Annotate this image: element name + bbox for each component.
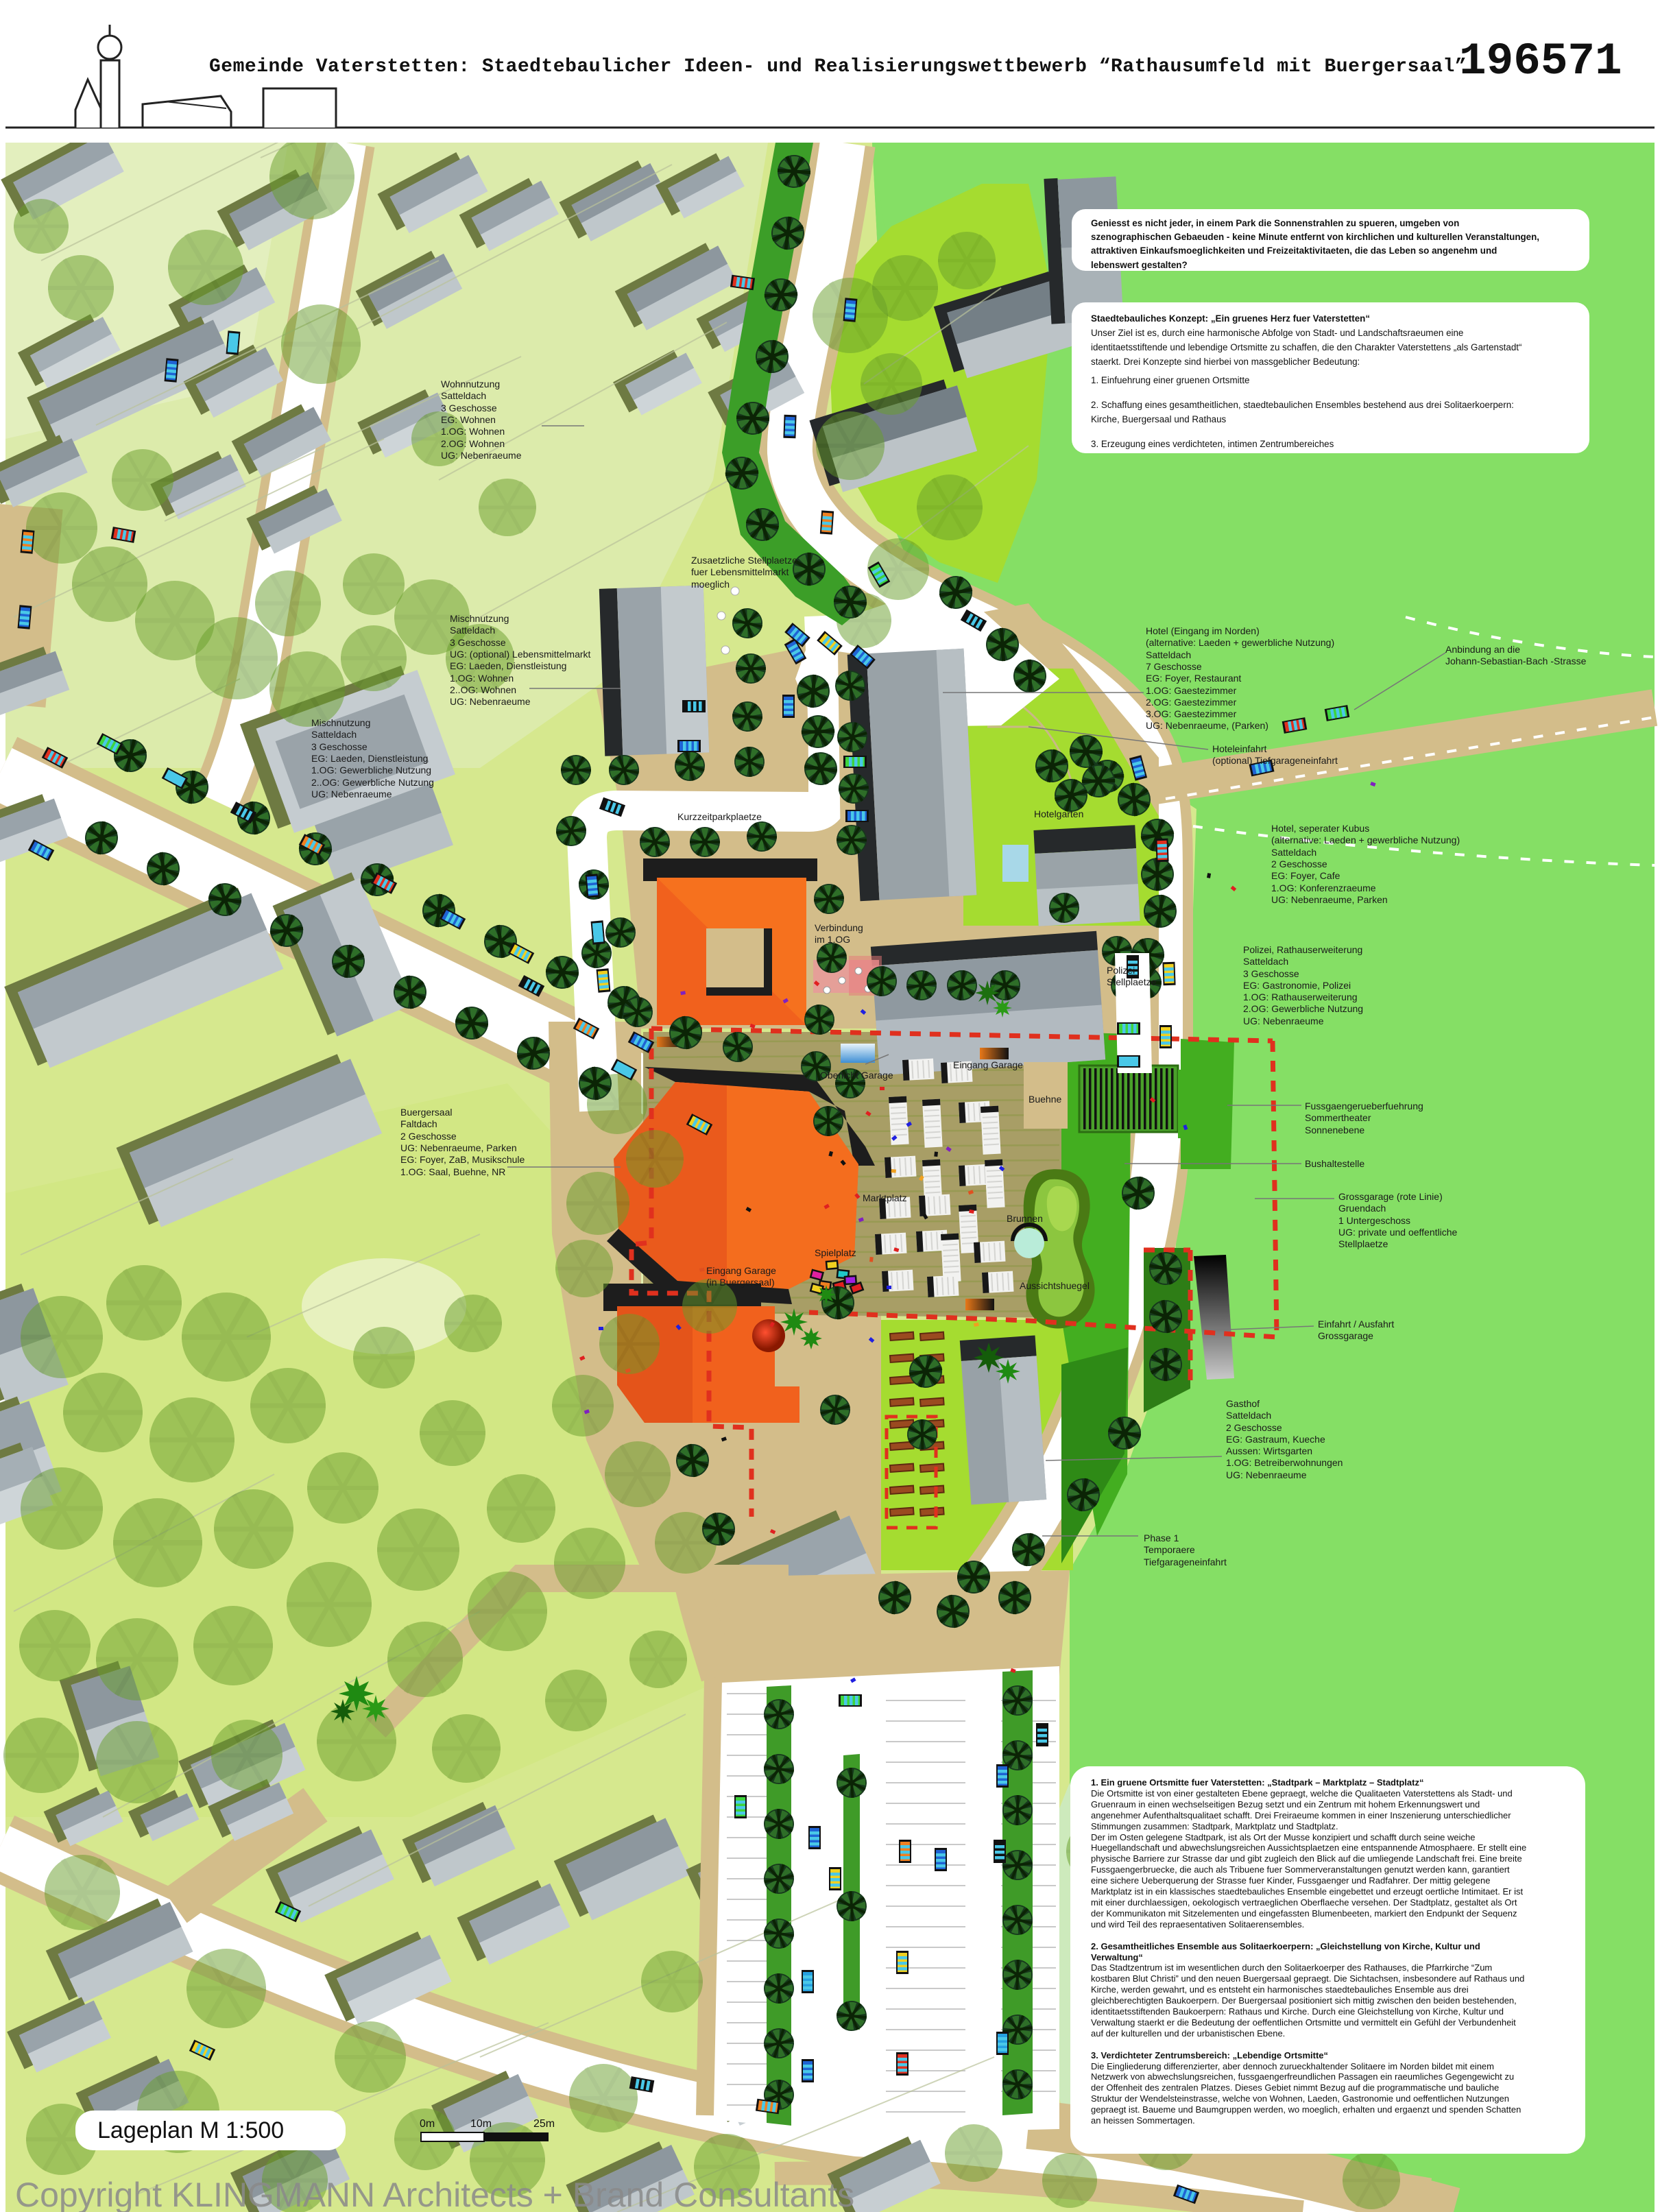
svg-text:2..OG: Gewerbliche Nutzung: 2..OG: Gewerbliche Nutzung <box>311 777 434 788</box>
svg-text:Eingang Garage: Eingang Garage <box>953 1059 1023 1070</box>
svg-text:EG: Laeden, Dienstleistung: EG: Laeden, Dienstleistung <box>450 660 566 671</box>
svg-text:UG: private und oeffentliche: UG: private und oeffentliche <box>1338 1227 1458 1238</box>
svg-text:1.OG: Rathauserweiterung: 1.OG: Rathauserweiterung <box>1243 991 1358 1002</box>
svg-text:3 Geschosse: 3 Geschosse <box>450 637 506 648</box>
svg-text:Spielplatz: Spielplatz <box>815 1247 856 1258</box>
svg-text:EG: Laeden, Dienstleistung: EG: Laeden, Dienstleistung <box>311 753 428 764</box>
svg-text:1.OG: Wohnen: 1.OG: Wohnen <box>450 673 514 684</box>
svg-text:25m: 25m <box>533 2118 555 2130</box>
svg-text:3 Geschosse: 3 Geschosse <box>1243 968 1299 979</box>
svg-text:Fussgaengerueberfuehrung: Fussgaengerueberfuehrung <box>1305 1101 1423 1111</box>
svg-text:2.OG: Wohnen: 2.OG: Wohnen <box>441 438 505 449</box>
svg-text:Satteldach: Satteldach <box>311 729 357 740</box>
svg-text:3.OG: Gaestezimmer: 3.OG: Gaestezimmer <box>1146 708 1237 719</box>
svg-text:196571: 196571 <box>1459 36 1622 87</box>
svg-text:UG: Nebenraeume, Parken: UG: Nebenraeume, Parken <box>400 1142 517 1153</box>
svg-text:2 Geschosse: 2 Geschosse <box>400 1131 457 1142</box>
svg-text:2 Geschosse: 2 Geschosse <box>1226 1422 1282 1433</box>
svg-text:Sommertheater: Sommertheater <box>1305 1112 1371 1123</box>
svg-text:Polizei: Polizei <box>1107 965 1135 976</box>
svg-text:Hoteleinfahrt: Hoteleinfahrt <box>1212 743 1266 754</box>
svg-text:Hotel, seperater Kubus: Hotel, seperater Kubus <box>1271 823 1369 834</box>
svg-text:Aussichtshuegel: Aussichtshuegel <box>1020 1280 1090 1291</box>
svg-text:Mischnutzung: Mischnutzung <box>450 613 509 624</box>
svg-text:Satteldach: Satteldach <box>441 390 486 401</box>
svg-text:UG: Nebenraeume: UG: Nebenraeume <box>1243 1015 1324 1026</box>
svg-text:(alternative: Laeden + gewerb: (alternative: Laeden + gewerbliche Nutzu… <box>1271 834 1460 845</box>
svg-text:Sonnenebene: Sonnenebene <box>1305 1125 1364 1135</box>
svg-text:Gemeinde Vaterstetten: Staedte: Gemeinde Vaterstetten: Staedtebaulicher … <box>209 56 1467 77</box>
svg-text:Aussen: Wirtsgarten: Aussen: Wirtsgarten <box>1226 1445 1312 1456</box>
svg-text:3 Geschosse: 3 Geschosse <box>311 741 368 752</box>
svg-text:2.OG: Gewerbliche Nutzung: 2.OG: Gewerbliche Nutzung <box>1243 1003 1363 1014</box>
svg-text:Gruendach: Gruendach <box>1338 1203 1386 1214</box>
svg-text:2 Geschosse: 2 Geschosse <box>1271 858 1327 869</box>
svg-text:Temporaere: Temporaere <box>1144 1544 1195 1555</box>
svg-text:UG: Nebenraeume, (Parken): UG: Nebenraeume, (Parken) <box>1146 720 1268 731</box>
svg-text:Eingang Garage: Eingang Garage <box>706 1265 776 1276</box>
svg-text:(optional) Tiefgarageneinfahrt: (optional) Tiefgarageneinfahrt <box>1212 755 1338 766</box>
svg-text:Brunnen: Brunnen <box>1007 1213 1043 1224</box>
svg-text:(alternative: Laeden + gewerb: (alternative: Laeden + gewerbliche Nutzu… <box>1146 637 1334 648</box>
svg-text:2..OG: Wohnen: 2..OG: Wohnen <box>450 684 516 695</box>
svg-text:Kurzzeitparkplaetze: Kurzzeitparkplaetze <box>677 811 762 822</box>
svg-text:Satteldach: Satteldach <box>1243 956 1288 967</box>
svg-text:EG: Foyer, Cafe: EG: Foyer, Cafe <box>1271 870 1340 881</box>
svg-text:1.OG: Konferenzraeume: 1.OG: Konferenzraeume <box>1271 882 1376 893</box>
svg-text:Wohnnutzung: Wohnnutzung <box>441 378 500 389</box>
svg-text:EG: Gastronomie, Polizei: EG: Gastronomie, Polizei <box>1243 980 1351 991</box>
svg-text:EG: Wohnen: EG: Wohnen <box>441 414 496 425</box>
svg-text:Lageplan M 1:500: Lageplan M 1:500 <box>97 2117 284 2143</box>
svg-text:UG: (optional) Lebensmittelmar: UG: (optional) Lebensmittelmarkt <box>450 649 591 660</box>
svg-text:Buehne: Buehne <box>1029 1094 1061 1105</box>
svg-text:EG: Foyer, Restaurant: EG: Foyer, Restaurant <box>1146 673 1241 684</box>
svg-text:Satteldach: Satteldach <box>450 625 495 636</box>
svg-text:Buergersaal: Buergersaal <box>400 1107 453 1118</box>
svg-text:Copyright KLINGMANN Architects: Copyright KLINGMANN Architects + Brand C… <box>15 2176 854 2212</box>
svg-text:UG: Nebenraeume: UG: Nebenraeume <box>311 789 392 800</box>
svg-text:1.OG: Wohnen: 1.OG: Wohnen <box>441 426 505 437</box>
svg-text:Bushaltestelle: Bushaltestelle <box>1305 1158 1364 1169</box>
svg-text:Satteldach: Satteldach <box>1146 649 1191 660</box>
svg-text:2.OG: Gaestezimmer: 2.OG: Gaestezimmer <box>1146 697 1237 708</box>
svg-text:1.OG: Betreiberwohnungen: 1.OG: Betreiberwohnungen <box>1226 1457 1343 1468</box>
svg-text:10m: 10m <box>470 2118 492 2130</box>
svg-text:Faltdach: Faltdach <box>400 1118 437 1129</box>
svg-text:Zusaetzliche Stellplaetze: Zusaetzliche Stellplaetze <box>691 555 797 566</box>
svg-text:moeglich: moeglich <box>691 579 730 590</box>
svg-text:Polizei, Rathauserweiterung: Polizei, Rathauserweiterung <box>1243 944 1362 955</box>
svg-text:Marktplatz: Marktplatz <box>863 1192 907 1203</box>
svg-text:Einfahrt / Ausfahrt: Einfahrt / Ausfahrt <box>1318 1319 1394 1330</box>
svg-text:Hotelgarten: Hotelgarten <box>1034 808 1083 819</box>
svg-text:7 Geschosse: 7 Geschosse <box>1146 661 1202 672</box>
svg-text:im 1.OG: im 1.OG <box>815 934 850 945</box>
svg-text:1.OG: Gaestezimmer: 1.OG: Gaestezimmer <box>1146 685 1237 696</box>
svg-text:fuer Lebensmittelmarkt: fuer Lebensmittelmarkt <box>691 566 789 577</box>
svg-text:UG: Nebenraeume: UG: Nebenraeume <box>450 696 531 707</box>
svg-text:Phase 1: Phase 1 <box>1144 1532 1179 1543</box>
svg-text:Gasthof: Gasthof <box>1226 1398 1260 1409</box>
svg-text:0m: 0m <box>420 2118 435 2130</box>
svg-text:Mischnutzung: Mischnutzung <box>311 717 370 728</box>
svg-text:1.OG: Saal, Buehne, NR: 1.OG: Saal, Buehne, NR <box>400 1166 505 1177</box>
svg-text:1 Untergeschoss: 1 Untergeschoss <box>1338 1215 1410 1226</box>
svg-text:Grossgarage: Grossgarage <box>1318 1330 1373 1341</box>
svg-text:EG: Gastraum, Kueche: EG: Gastraum, Kueche <box>1226 1434 1325 1445</box>
svg-text:Johann-Sebastian-Bach -Strasse: Johann-Sebastian-Bach -Strasse <box>1445 656 1587 666</box>
svg-text:(in Buergersaal): (in Buergersaal) <box>706 1277 775 1288</box>
svg-text:1.OG: Gewerbliche Nutzung: 1.OG: Gewerbliche Nutzung <box>311 765 431 776</box>
svg-text:3 Geschosse: 3 Geschosse <box>441 402 497 413</box>
svg-text:Tiefgarageneinfahrt: Tiefgarageneinfahrt <box>1144 1556 1227 1567</box>
svg-text:Oberlicht Garage: Oberlicht Garage <box>820 1070 893 1081</box>
svg-text:Stellplaetze: Stellplaetze <box>1338 1238 1388 1249</box>
svg-text:UG: Nebenraeume: UG: Nebenraeume <box>1226 1469 1307 1480</box>
svg-text:Stellplaetze: Stellplaetze <box>1107 976 1157 987</box>
svg-text:UG: Nebenraeume, Parken: UG: Nebenraeume, Parken <box>1271 894 1388 905</box>
svg-text:Satteldach: Satteldach <box>1226 1410 1271 1421</box>
svg-text:Verbindung: Verbindung <box>815 922 863 933</box>
svg-text:Anbindung an die: Anbindung an die <box>1445 644 1520 655</box>
svg-text:UG: Nebenraeume: UG: Nebenraeume <box>441 450 522 461</box>
svg-text:EG: Foyer, ZaB, Musikschule: EG: Foyer, ZaB, Musikschule <box>400 1154 525 1165</box>
svg-text:Hotel (Eingang im Norden): Hotel (Eingang im Norden) <box>1146 625 1260 636</box>
svg-text:Grossgarage (rote Linie): Grossgarage (rote Linie) <box>1338 1191 1443 1202</box>
svg-text:Satteldach: Satteldach <box>1271 847 1316 858</box>
